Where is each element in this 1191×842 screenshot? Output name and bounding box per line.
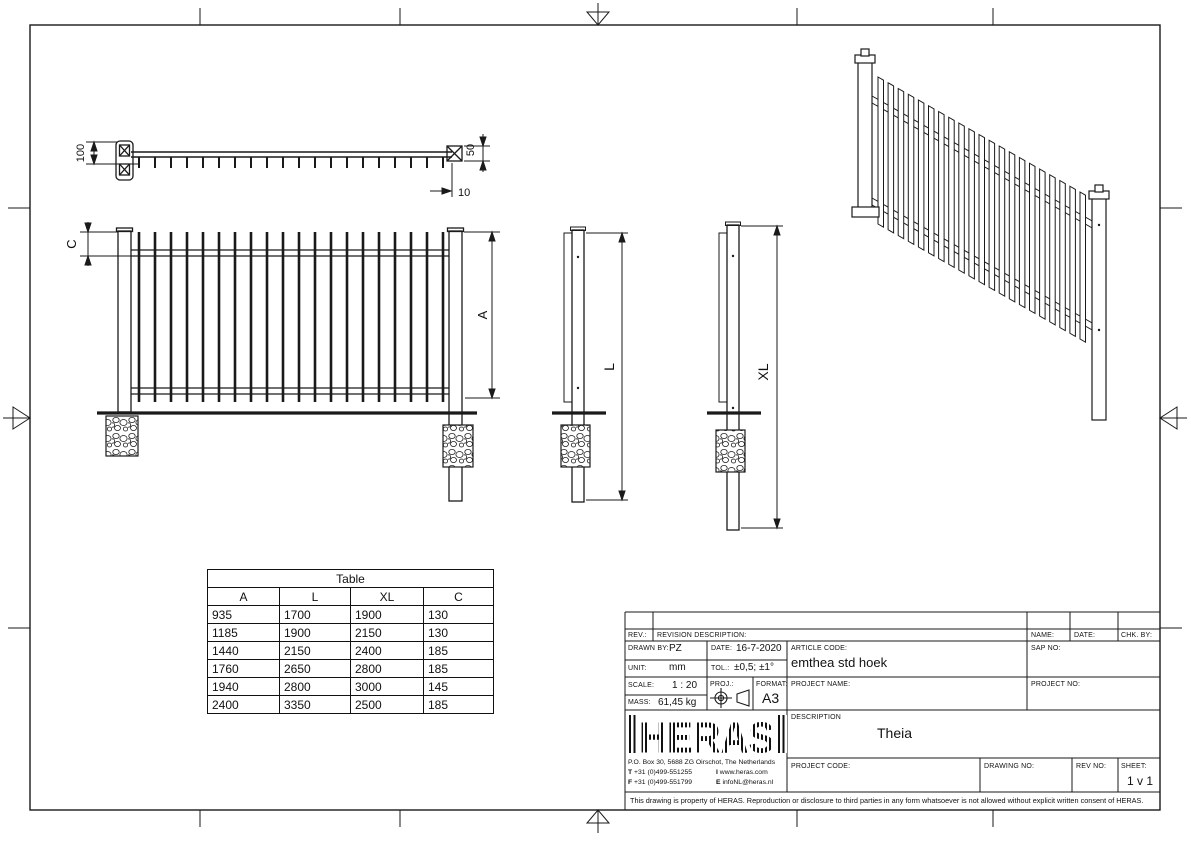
col-header-L: L [280, 588, 351, 606]
front-view: C A [64, 222, 500, 501]
footing-right [443, 425, 473, 467]
table-row: 144021502400185 [208, 642, 494, 660]
sheet-frame [3, 3, 1187, 833]
svg-text:10: 10 [458, 187, 470, 199]
date-value: 16-7-2020 [736, 644, 782, 654]
tol-label: TOL.: [711, 665, 729, 672]
name-label: NAME: [1031, 632, 1054, 639]
iso-right-post [1089, 185, 1109, 420]
footing-left [106, 416, 138, 456]
tol-value: ±0,5; ±1° [734, 663, 774, 673]
top-view-right-post [447, 146, 462, 161]
dim-50: 50 [464, 134, 490, 172]
project-no-label: PROJECT NO: [1031, 681, 1080, 688]
spec-table-header-row: A L XL C [208, 588, 494, 606]
chk-by-label: CHK. BY: [1121, 632, 1152, 639]
svg-text:XL: XL [755, 363, 771, 380]
title-block-grid [625, 612, 1160, 810]
dim-100: 100 [75, 142, 140, 164]
dim-L: L [586, 233, 628, 500]
revision-description-label: REVISION DESCRIPTION: [657, 632, 746, 639]
svg-text:A: A [475, 310, 490, 319]
scale-value: 1 : 20 [672, 681, 697, 691]
top-view: 100 50 10 [75, 134, 490, 199]
format-value: A3 [762, 691, 779, 705]
sheet-label: SHEET: [1121, 763, 1147, 770]
iso-left-post [852, 49, 879, 217]
logo-left-stripes [629, 715, 638, 753]
svg-text:L: L [601, 363, 617, 371]
date-col-label: DATE: [1074, 632, 1095, 639]
project-name-label: PROJECT NAME: [791, 681, 850, 688]
article-code-value: emthea std hoek [791, 656, 887, 669]
svg-text:C: C [64, 239, 79, 248]
rev-no-label: REV NO: [1076, 763, 1106, 770]
table-row: 93517001900130 [208, 606, 494, 624]
company-address: P.O. Box 30, 5688 ZG Oirschot, The Nethe… [628, 760, 775, 767]
panel-edge-xl [719, 233, 727, 402]
rev-label: REV.: [628, 632, 647, 639]
disclaimer: This drawing is property of HERAS. Repro… [630, 797, 1143, 804]
sap-no-label: SAP NO: [1031, 645, 1061, 652]
heras-logo: HERAS [629, 712, 787, 756]
svg-text:50: 50 [465, 144, 477, 156]
drawn-by-label: DRAWN BY: [628, 645, 669, 652]
panel-edge [564, 233, 572, 402]
drawing-sheet: { "colors": { "line": "#1a1a1a", "backgr… [0, 0, 1191, 842]
logo-stripe-overlay [629, 712, 787, 756]
centering-mark-right [1160, 407, 1187, 429]
drawn-by-value: PZ [669, 644, 682, 654]
proj-label: PROJ.: [710, 681, 734, 688]
front-view-pickets [139, 232, 443, 402]
centering-mark-top [587, 3, 609, 25]
scale-label: SCALE: [628, 682, 654, 689]
date-label: DATE: [711, 645, 732, 652]
dim-A: A [464, 232, 500, 398]
svg-text:100: 100 [75, 144, 87, 162]
col-header-A: A [208, 588, 280, 606]
unit-value: mm [669, 663, 686, 673]
table-row: 194028003000145 [208, 678, 494, 696]
project-code-label: PROJECT CODE: [791, 763, 850, 770]
description-value: Theia [877, 726, 912, 740]
centering-mark-bottom [587, 810, 609, 833]
article-code-label: ARTICLE CODE: [791, 645, 847, 652]
footing-L [561, 425, 590, 467]
table-row: 176026502800185 [208, 660, 494, 678]
footing-XL [716, 430, 745, 472]
top-view-picket-ticks [139, 157, 443, 168]
centering-mark-left [3, 407, 30, 429]
spec-table: Table A L XL C 93517001900130 1185190021… [207, 569, 494, 714]
iso-pickets [878, 77, 1086, 342]
cad-drawing-canvas: 100 50 10 [0, 0, 1191, 842]
dim-10: 10 [430, 163, 470, 199]
spec-table-title: Table [208, 570, 494, 588]
top-view-left-post [116, 141, 133, 180]
sheet-value: 1 v 1 [1127, 775, 1153, 787]
side-view-XL: XL [707, 222, 783, 530]
description-label: DESCRIPTION [791, 714, 841, 721]
col-header-XL: XL [351, 588, 424, 606]
col-header-C: C [424, 588, 494, 606]
projection-symbol-icon [710, 688, 749, 708]
format-label: FORMAT: [756, 681, 788, 688]
dim-XL: XL [741, 226, 783, 528]
mass-label: MASS: [628, 699, 651, 706]
unit-label: UNIT: [628, 665, 647, 672]
isometric-view [852, 49, 1109, 420]
side-view-L: L [552, 227, 628, 502]
drawing-no-label: DRAWING NO: [984, 763, 1034, 770]
logo-right-stripes [778, 715, 787, 753]
table-row: 240033502500185 [208, 696, 494, 714]
company-fax-email: F +31 (0)499-551799 E infoNL@heras.nl [628, 780, 692, 787]
table-row: 118519002150130 [208, 624, 494, 642]
company-tel-web: T +31 (0)499-551255 I www.heras.com [628, 770, 692, 777]
mass-value: 61,45 kg [658, 698, 696, 708]
